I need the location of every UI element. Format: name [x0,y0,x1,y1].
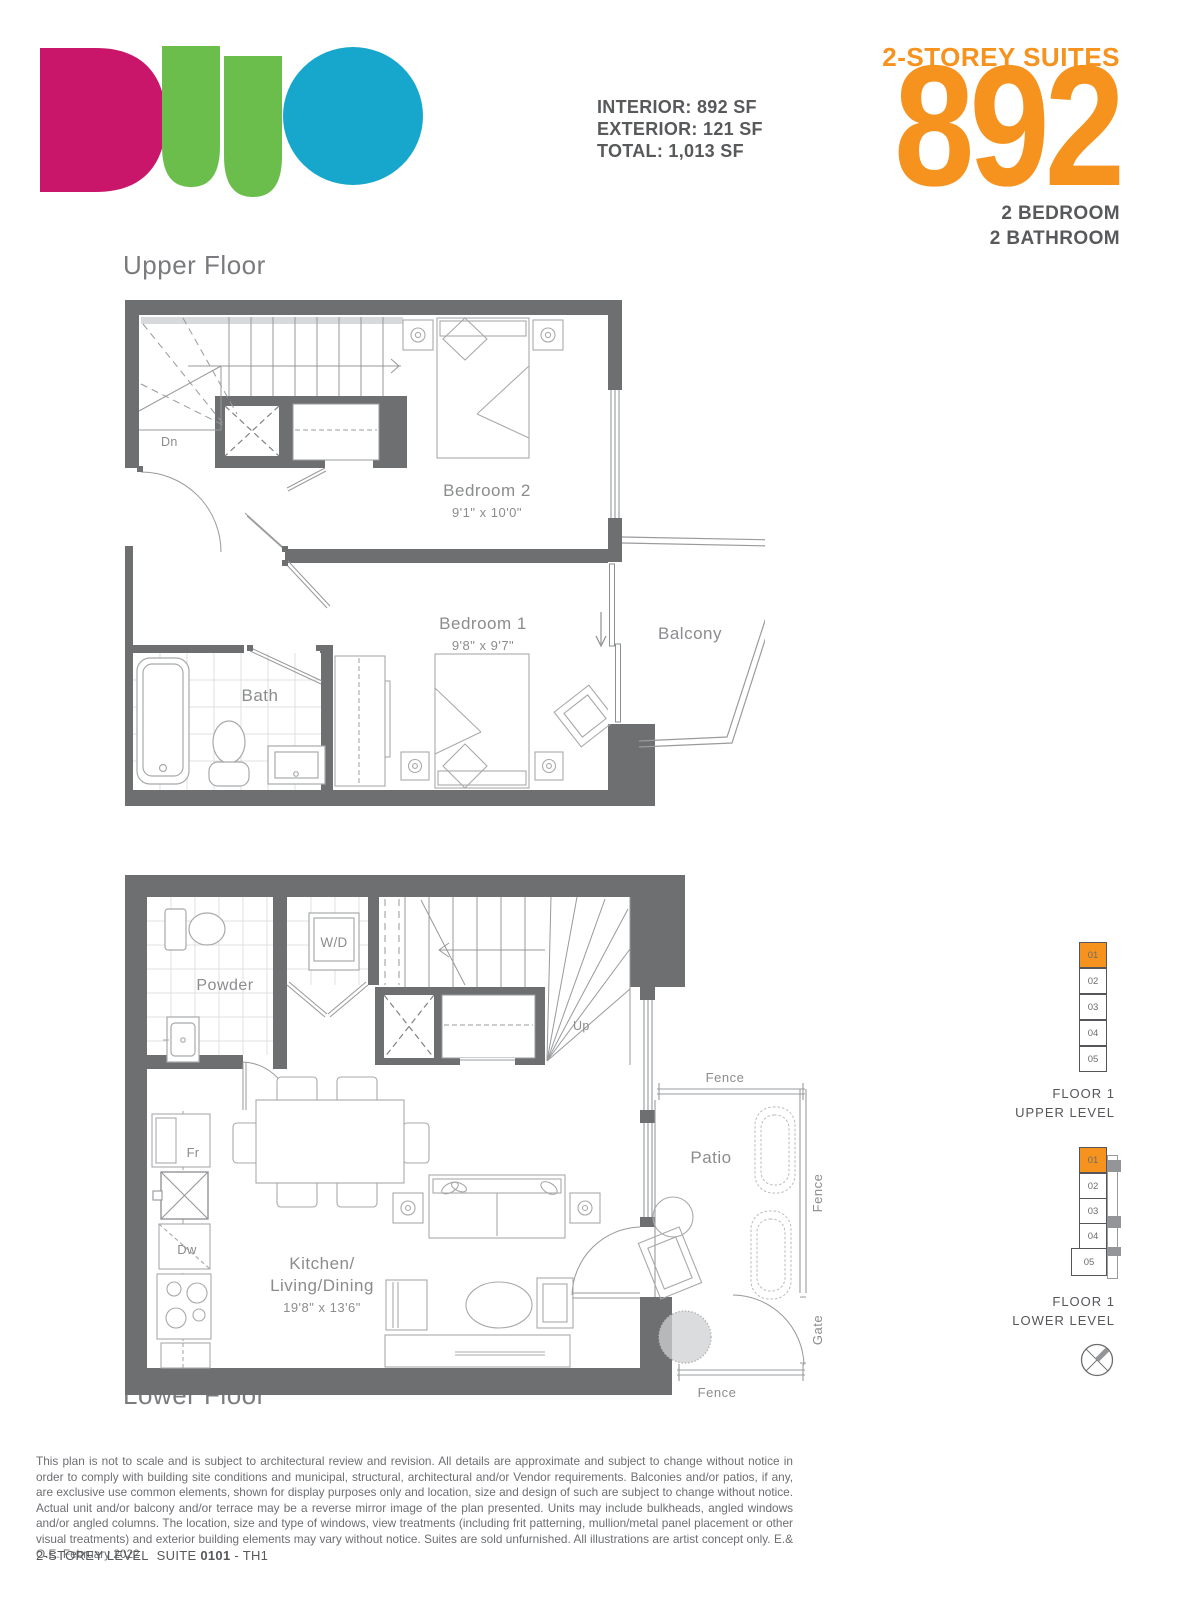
bath-room: Bath [133,645,325,790]
dining-table [256,1100,404,1183]
patio: Patio Fence Fence Gate Fence [638,1070,825,1400]
hall-closet [293,404,379,460]
logo-letter-o [283,47,423,185]
living-windows [640,1000,655,1217]
fence-right-label: Fence [810,1174,825,1213]
toilet [189,913,225,945]
compass-icon [1080,1343,1114,1377]
keyplan-bump [1107,1247,1121,1256]
logo-letter-u-right [224,56,282,197]
toilet-tank [165,909,186,950]
cooktop [157,1274,211,1339]
kitchen-cabinet [161,1343,210,1368]
patio-tree [659,1311,711,1363]
keyplan-upper-unit-01: 01 [1079,942,1107,968]
interior-sf: INTERIOR: 892 SF [597,96,763,118]
keyplan-upper-unit-05: 05 [1079,1046,1107,1072]
suite-model: - TH1 [234,1548,268,1563]
stair-handrail [141,317,403,324]
bedroom1-chair [554,685,616,747]
hall-door-arc [137,466,221,552]
nightstand [401,752,429,780]
patio-chair [638,1227,701,1299]
keyplan-bump [1107,1216,1121,1228]
exterior-sf: EXTERIOR: 121 SF [597,118,763,140]
keyplan-upper-unit-03: 03 [1079,994,1107,1020]
coffee-table [466,1282,532,1328]
laundry-doors [287,982,368,1017]
bedroom2-window [608,390,622,518]
bedroom1-closet [335,656,390,786]
balcony-label: Balcony [658,624,722,643]
keyplan-lower-unit-04: 04 [1079,1223,1107,1249]
bedroom2-furniture [403,318,563,458]
bed [435,654,529,788]
accent-chair [537,1278,573,1328]
kitchen-label-line2: Living/Dining [270,1276,374,1295]
bath-door [247,645,322,684]
fence-bottom-label: Fence [698,1385,737,1400]
nightstand [533,320,563,350]
dining-set [233,1077,429,1207]
kitchen-label-line1: Kitchen/ [289,1254,354,1273]
keyplan-lower-unit-03: 03 [1079,1198,1107,1224]
stairs-dn-label: Dn [161,435,178,449]
laundry-closet: W/D [287,897,368,1017]
area-stats: INTERIOR: 892 SF EXTERIOR: 121 SF TOTAL:… [597,96,763,162]
patio-table [653,1197,693,1237]
end-table [393,1193,423,1223]
suite-number: 0101 [200,1548,230,1563]
powder-label: Powder [196,977,253,994]
total-sf: TOTAL: 1,013 SF [597,140,763,162]
toilet [213,721,245,763]
washer-dryer-label: W/D [320,935,347,950]
bedroom1-dims: 9'8" x 9'7" [452,638,514,653]
logo-letter-d [40,48,166,192]
suite-word: SUITE [157,1548,197,1563]
balcony-sliding-door [608,562,622,724]
keyplan-upper-label: FLOOR 1 UPPER LEVEL [983,1084,1115,1122]
fridge-label: Fr [187,1145,200,1160]
accent-chair [386,1280,427,1330]
keyplan-lower-unit-05: 05 [1071,1248,1107,1276]
upper-floor-plan: Dn [125,296,765,806]
bedroom-count: 2 BEDROOM [990,201,1120,226]
entry-closet [442,995,535,1058]
lower-floor-plan: Up Powder [125,865,830,1400]
floorplan-sheet: INTERIOR: 892 SF EXTERIOR: 121 SF TOTAL:… [0,0,1183,1600]
balcony-access-arrow [596,612,606,646]
gate-label: Gate [810,1315,825,1345]
bed-bath-count: 2 BEDROOM 2 BATHROOM [990,201,1120,251]
dishwasher-label: Dw [177,1242,197,1257]
keyplan-lower-label: FLOOR 1 LOWER LEVEL [983,1292,1115,1330]
fence-top-label: Fence [706,1070,745,1085]
keyplan-lower-unit-01: 01 [1079,1147,1107,1173]
bedroom1-furniture [401,654,616,788]
suite-level: 2-STOREY LEVEL [36,1548,149,1563]
legal-disclaimer: This plan is not to scale and is subject… [36,1454,793,1563]
keyplan-bump [1107,1160,1121,1172]
tv-console [385,1335,570,1367]
duo-logo [38,38,428,213]
living-set [385,1175,600,1367]
hedges [751,1107,795,1299]
kitchen-dims: 19'8" x 13'6" [283,1300,361,1315]
keyplan-lower-unit-02: 02 [1079,1173,1107,1199]
patio-label: Patio [690,1148,731,1167]
nightstand [403,320,433,350]
nightstand [535,752,563,780]
logo-letter-u-left [162,46,220,187]
stairs-up-label: Up [573,1019,590,1033]
bed [437,318,529,458]
keyplan-upper-unit-02: 02 [1079,968,1107,994]
suite-square-footage: 892 [894,52,1120,200]
suite-identifier: 2-STOREY LEVEL SUITE 0101 - TH1 [36,1548,268,1563]
keyplan-upper-unit-04: 04 [1079,1020,1107,1046]
bathroom-count: 2 BATHROOM [990,226,1120,251]
bedroom1-label: Bedroom 1 [439,614,527,633]
bath-label: Bath [242,686,279,705]
powder-room: Powder [147,897,291,1112]
patio-door [572,1227,640,1298]
bedroom2-label: Bedroom 2 [443,481,531,500]
end-table [570,1193,600,1223]
upper-floor-title: Upper Floor [123,250,266,281]
kitchen-appliances [152,1111,211,1368]
gate-arc [733,1295,806,1365]
bedroom2-dims: 9'1" x 10'0" [452,505,522,520]
